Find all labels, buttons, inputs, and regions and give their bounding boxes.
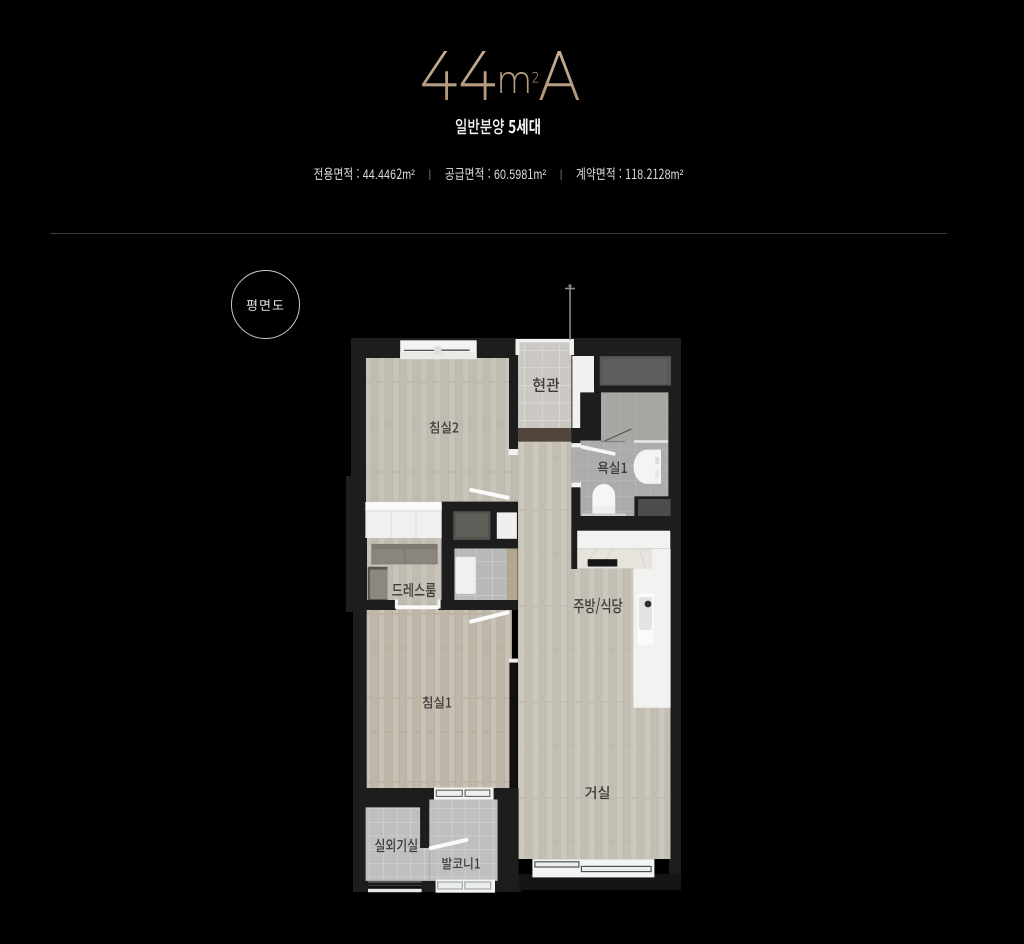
svg-text:침실2: 침실2	[429, 417, 459, 437]
svg-text:현관: 현관	[532, 372, 560, 396]
svg-text:욕실1: 욕실1	[597, 458, 628, 478]
svg-text:침실1: 침실1	[422, 692, 452, 712]
svg-text:드레스룸: 드레스룸	[392, 577, 437, 601]
svg-text:주방/식당: 주방/식당	[573, 593, 623, 617]
svg-text:거실: 거실	[585, 782, 611, 803]
svg-text:발코니1: 발코니1	[442, 852, 481, 872]
svg-text:실외기실: 실외기실	[374, 835, 418, 856]
